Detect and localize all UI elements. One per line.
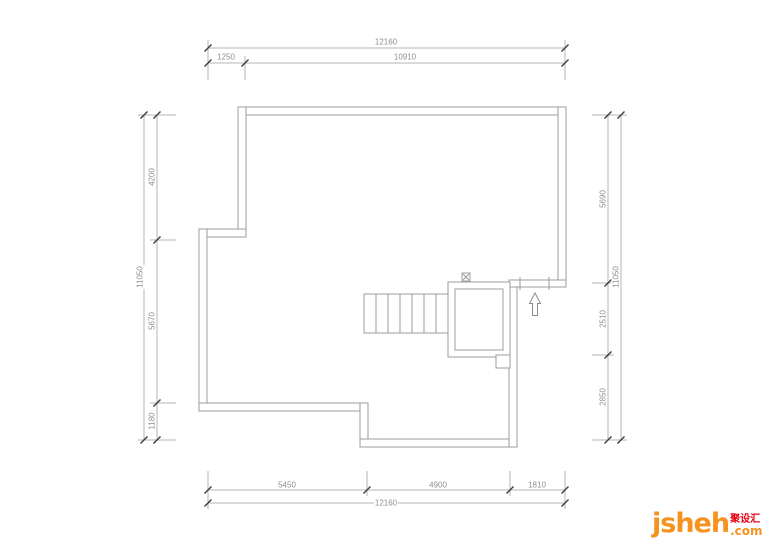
dim-label-left-seg2: 5670 xyxy=(148,311,157,331)
jsheh-logo: jsheh 聚设汇 .com xyxy=(652,509,770,544)
wall-terrace-edge xyxy=(509,280,566,287)
dim-label-top-seg1: 1250 xyxy=(216,53,236,62)
wall-top xyxy=(238,107,566,115)
wall-left-upper xyxy=(238,107,246,237)
stair-outline xyxy=(364,294,448,333)
wall-left-lower xyxy=(199,229,207,411)
dim-label-left-seg3: 1180 xyxy=(148,411,157,430)
floor-drain-icon xyxy=(462,273,470,281)
dim-label-right-seg1: 5690 xyxy=(599,189,608,209)
dim-label-top-seg2: 10910 xyxy=(393,53,417,62)
dim-label-left-seg1: 4200 xyxy=(148,167,157,187)
dim-label-right-seg3: 2850 xyxy=(599,387,608,407)
wall-notch xyxy=(496,355,510,368)
dim-label-right-seg2: 2510 xyxy=(599,309,608,329)
exterior-walls xyxy=(199,107,566,447)
dim-label-bottom-seg3: 1810 xyxy=(527,481,547,490)
dim-label-top-total: 12160 xyxy=(374,38,398,47)
wall-bottom xyxy=(360,439,517,447)
logo-brand-text: jsheh xyxy=(652,509,729,539)
shaft-inner-wall xyxy=(455,289,503,350)
logo-tld-text: .com xyxy=(730,525,762,537)
dim-label-bottom-seg1: 5450 xyxy=(277,481,297,490)
staircase xyxy=(364,294,448,333)
dim-label-bottom-seg2: 4900 xyxy=(428,481,448,490)
dim-label-left-total: 11050 xyxy=(136,265,145,289)
dim-label-bottom-total: 12160 xyxy=(374,499,398,508)
shaft-room xyxy=(448,282,510,357)
floor-plan-canvas: 12160 1250 10910 5450 4900 1810 12160 11… xyxy=(0,0,770,544)
direction-arrow-icon xyxy=(530,293,541,316)
floor-plan-drawing xyxy=(0,0,770,544)
dim-label-right-total: 11050 xyxy=(612,265,621,289)
wall-right-upper xyxy=(558,107,566,287)
dimension-chain-right xyxy=(592,112,627,444)
wall-bottom-left xyxy=(199,403,368,411)
